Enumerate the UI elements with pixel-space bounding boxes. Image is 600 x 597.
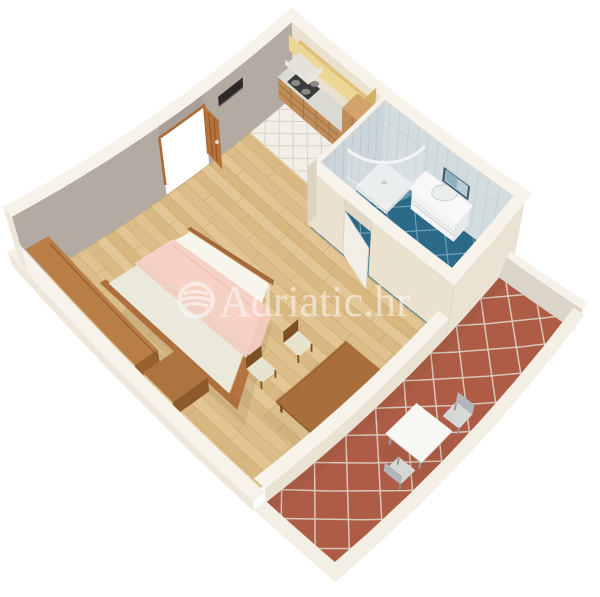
svg-text:Adriatic.hr: Adriatic.hr	[219, 277, 411, 326]
